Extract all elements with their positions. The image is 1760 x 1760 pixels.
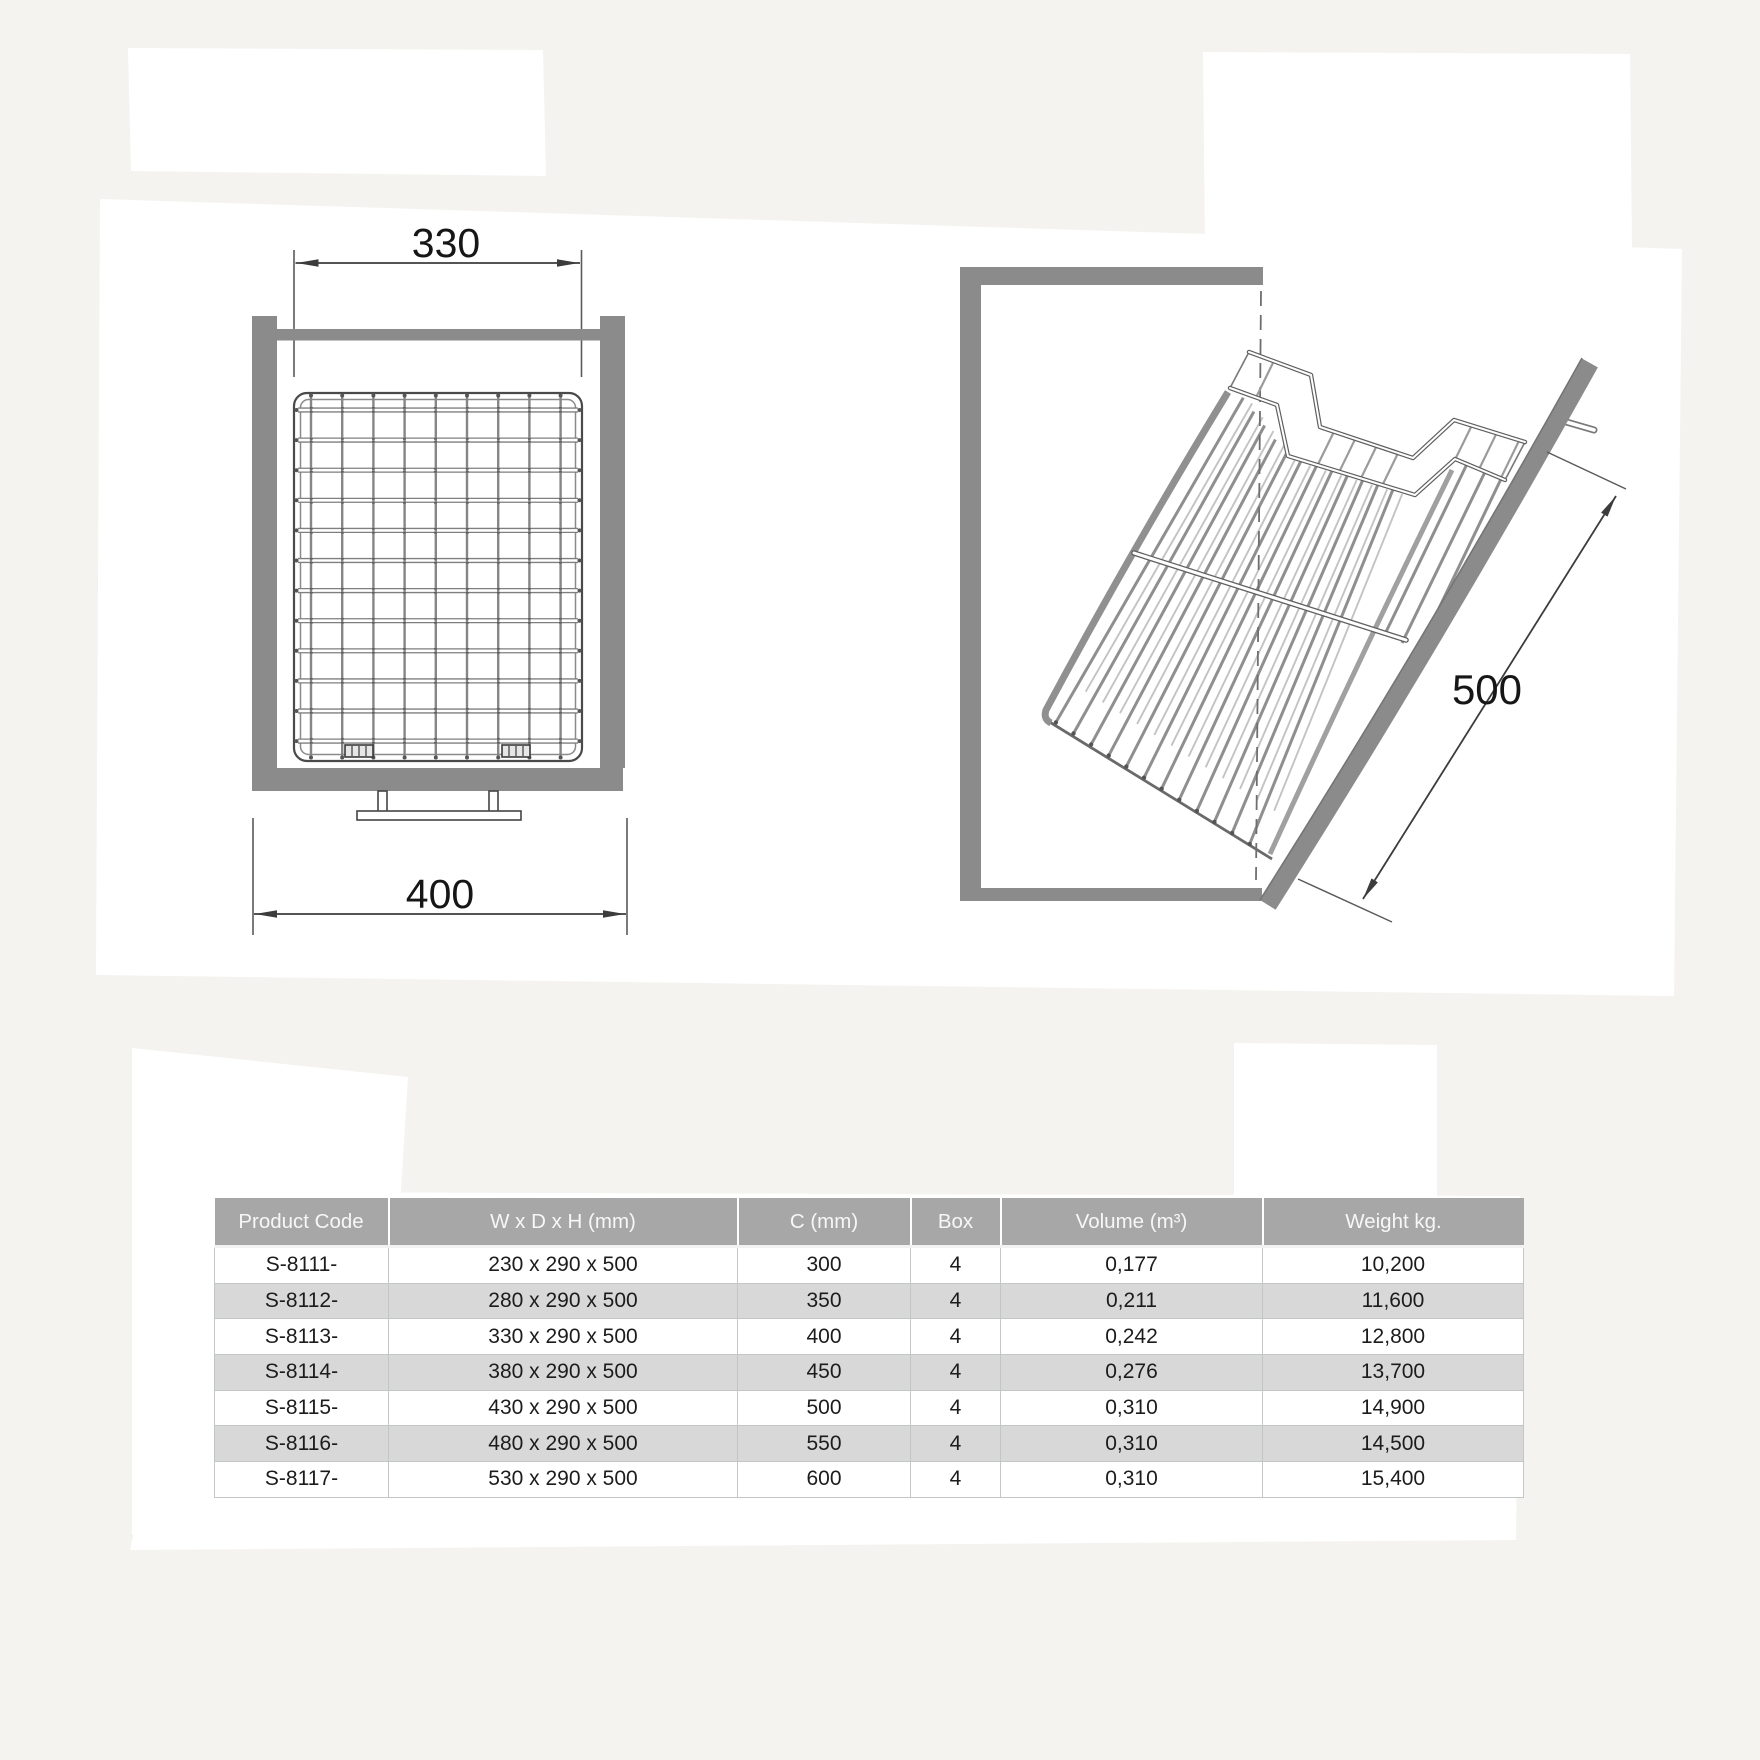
svg-text:500: 500 xyxy=(1452,666,1522,713)
svg-text:330: 330 xyxy=(412,220,480,266)
svg-text:400: 400 xyxy=(406,871,474,917)
